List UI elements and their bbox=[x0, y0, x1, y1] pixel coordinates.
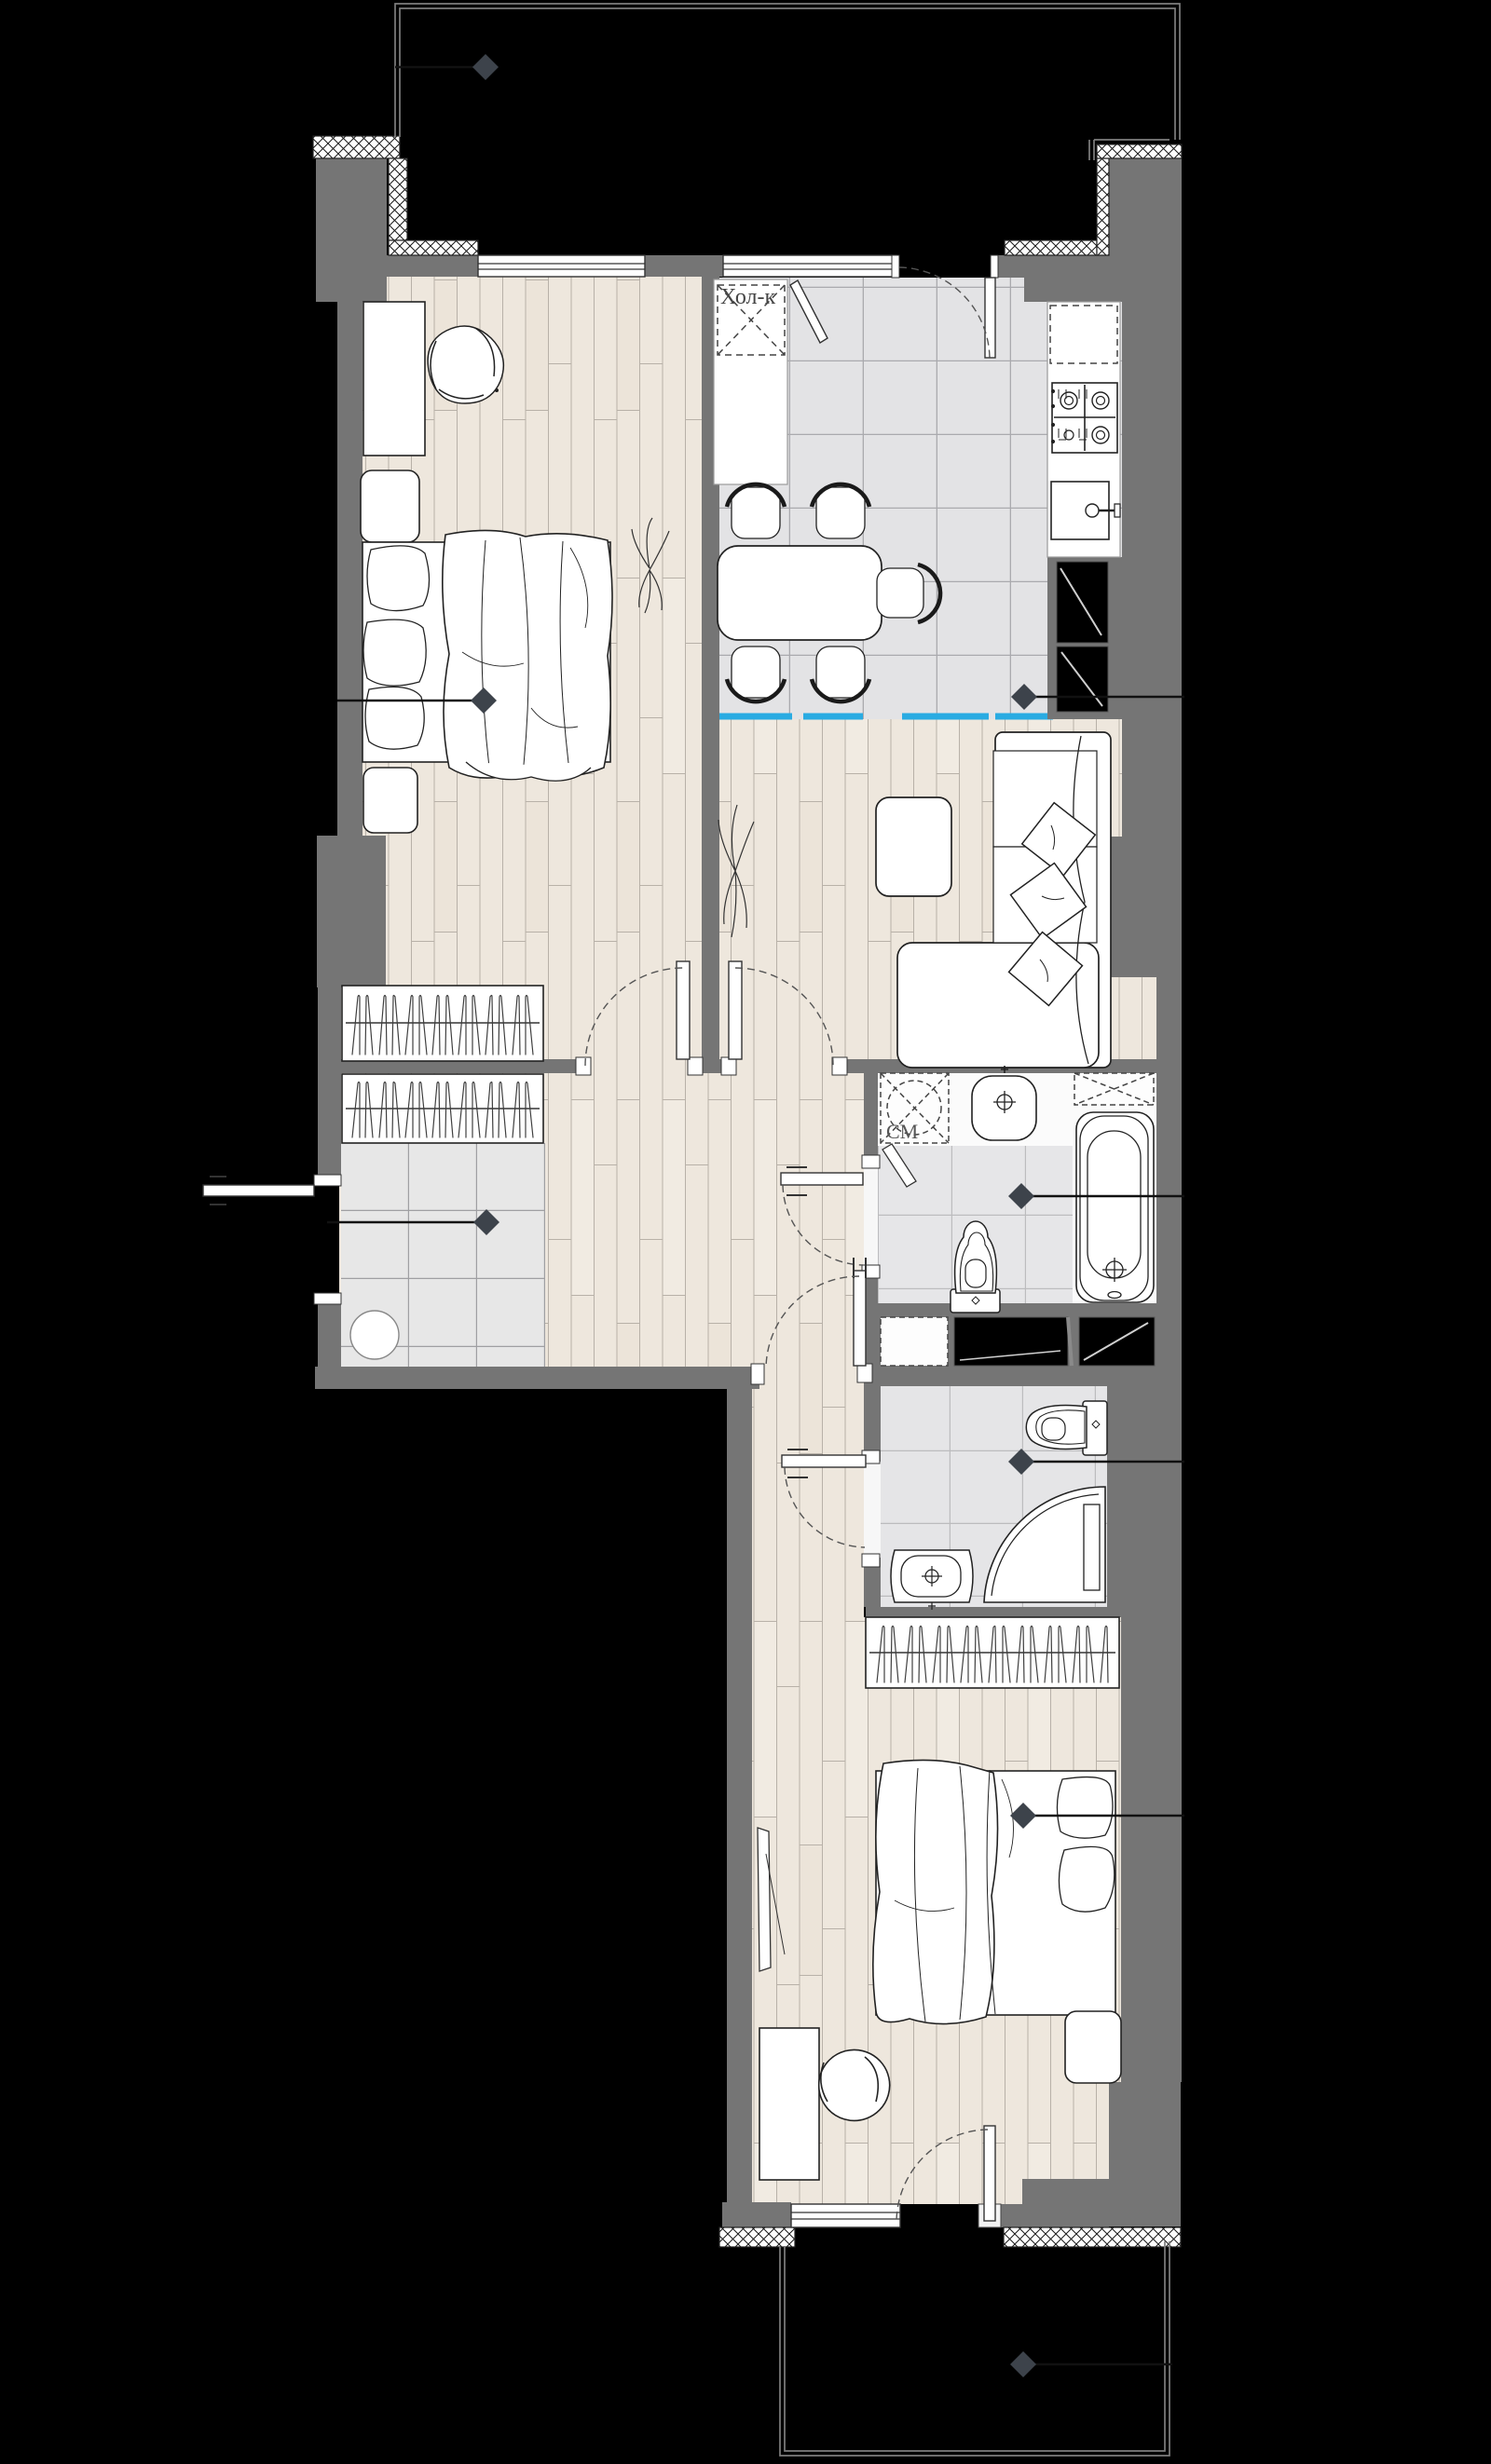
svg-text:Хол-к: Хол-к bbox=[720, 285, 775, 309]
svg-text:СМ: СМ bbox=[886, 1120, 918, 1143]
